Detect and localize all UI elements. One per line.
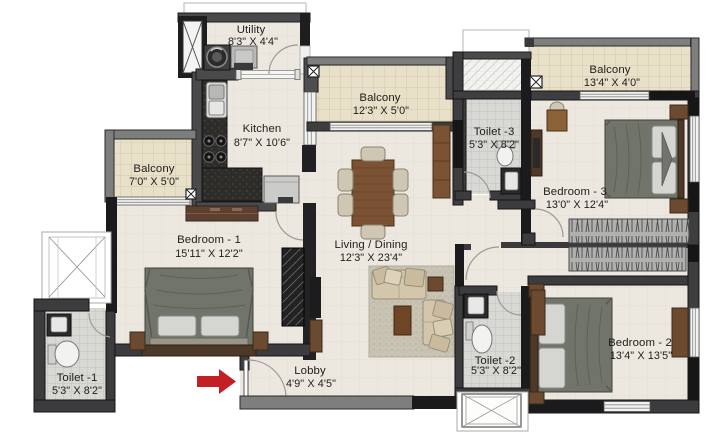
svg-text:Lobby: Lobby	[294, 365, 326, 377]
svg-text:Balcony: Balcony	[589, 64, 630, 76]
svg-text:5'3" X 8'2": 5'3" X 8'2"	[52, 385, 102, 397]
svg-text:12'3" X 5'0": 12'3" X 5'0"	[353, 105, 409, 117]
svg-text:Bedroom - 1: Bedroom - 1	[177, 234, 241, 246]
svg-text:Toilet -1: Toilet -1	[57, 372, 98, 384]
svg-text:Kitchen: Kitchen	[243, 123, 282, 135]
svg-text:Utility: Utility	[237, 24, 266, 36]
svg-text:Balcony: Balcony	[359, 92, 400, 104]
svg-text:Bedroom - 2: Bedroom - 2	[608, 337, 672, 349]
svg-text:13'4" X 4'0": 13'4" X 4'0"	[584, 77, 640, 89]
svg-text:5'3" X 8'2": 5'3" X 8'2"	[469, 139, 519, 151]
svg-text:5'3" X 8'2": 5'3" X 8'2"	[471, 365, 521, 377]
svg-text:13'0" X 12'4": 13'0" X 12'4"	[546, 199, 608, 211]
svg-text:Balcony: Balcony	[133, 163, 174, 175]
svg-text:4'9" X 4'5": 4'9" X 4'5"	[286, 378, 336, 390]
svg-text:15'11" X 12'2": 15'11" X 12'2"	[175, 248, 243, 260]
svg-text:Bedroom - 3: Bedroom - 3	[543, 186, 607, 198]
svg-text:7'0" X 5'0": 7'0" X 5'0"	[129, 176, 179, 188]
svg-text:12'3" X 23'4": 12'3" X 23'4"	[340, 252, 402, 264]
svg-text:8'7" X 10'6": 8'7" X 10'6"	[234, 137, 290, 149]
svg-text:Toilet -3: Toilet -3	[474, 126, 515, 138]
svg-text:Living / Dining: Living / Dining	[334, 239, 407, 251]
svg-text:13'4" X 13'5": 13'4" X 13'5"	[610, 350, 672, 362]
svg-text:8'3" X 4'4": 8'3" X 4'4"	[228, 36, 278, 48]
